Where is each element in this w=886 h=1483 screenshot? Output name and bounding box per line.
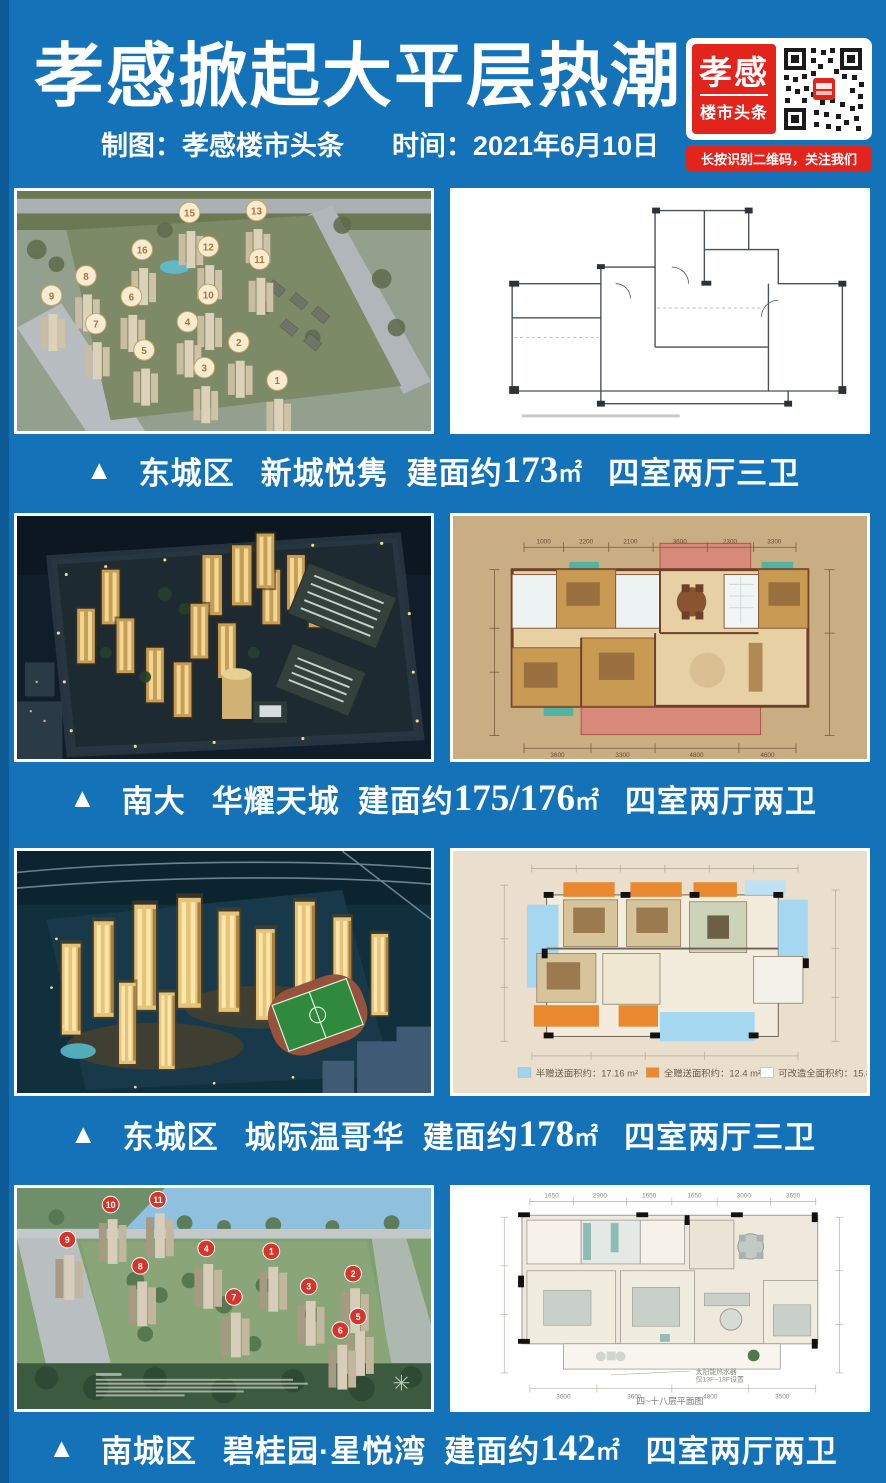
svg-text:10: 10 <box>106 1200 116 1210</box>
header-subline: 制图：孝感楼市头条 时间：2021年6月10日 <box>60 124 700 163</box>
svg-text:3600: 3600 <box>556 1393 571 1400</box>
aerial-photo-huayao <box>14 513 434 762</box>
svg-text:4800: 4800 <box>689 752 704 759</box>
brand-logo-line2: 楼市头条 <box>700 94 768 123</box>
date-text: 时间：2021年6月10日 <box>392 124 659 163</box>
room-layout: 四室两厅三卫 <box>608 448 800 493</box>
svg-text:4: 4 <box>204 1244 209 1254</box>
floor-plan-xincheng-art <box>453 191 867 431</box>
plan-disclaimer-line <box>522 414 680 417</box>
aerial-photo-wengehua-art <box>17 851 431 1093</box>
svg-text:5: 5 <box>356 1312 361 1322</box>
svg-text:4: 4 <box>185 318 191 329</box>
svg-text:11: 11 <box>254 255 265 266</box>
qr-caption: 长按识别二维码，关注我们 <box>686 146 872 171</box>
legend-label-full: 全赠送面积约：12.4 m² <box>664 1067 761 1078</box>
triangle-marker: ▲ <box>69 783 96 814</box>
svg-text:16: 16 <box>137 245 149 256</box>
room-layout: 四室两厅两卫 <box>625 776 817 821</box>
svg-text:4800: 4800 <box>703 1393 718 1400</box>
room-layout: 四室两厅两卫 <box>646 1426 838 1471</box>
brand-logo-line1: 孝感 <box>699 55 769 91</box>
aerial-photo-wengehua <box>14 848 434 1096</box>
svg-text:3300: 3300 <box>767 538 782 545</box>
district: 东城区 <box>123 1112 219 1157</box>
listing-caption-3: ▲ 东城区 城际温哥华 建面约 178 ㎡ 四室两厅三卫 <box>0 1104 886 1164</box>
svg-text:8: 8 <box>138 1261 143 1271</box>
svg-text:3: 3 <box>306 1282 311 1292</box>
svg-text:2300: 2300 <box>723 538 738 545</box>
svg-text:7: 7 <box>231 1292 236 1302</box>
svg-text:3000: 3000 <box>737 1193 752 1200</box>
brand-logo: 孝感 楼市头条 <box>692 44 776 134</box>
aerial-photo-xincheng-art: 15 13 16 12 11 8 9 6 10 7 4 2 5 3 1 <box>17 191 431 431</box>
svg-text:11: 11 <box>153 1195 162 1205</box>
area-value: 142 <box>540 1427 596 1470</box>
svg-text:3600: 3600 <box>673 538 688 545</box>
left-edge-shade <box>0 0 9 1483</box>
floor-plan-xingyuewan: 太阳能热水器 仅13F~18F设置 四~十八层平面图 1650 2900 165… <box>450 1185 870 1412</box>
floor-plan-xingyuewan-art: 太阳能热水器 仅13F~18F设置 四~十八层平面图 1650 2900 165… <box>453 1188 867 1409</box>
area-unit: ㎡ <box>575 781 599 816</box>
svg-text:9: 9 <box>49 291 55 302</box>
legend-label-convert: 可改造全面积约：15.84m² <box>778 1067 867 1078</box>
floor-plan-wengehua: 半赠送面积约：17.16 m² 全赠送面积约：12.4 m² 可改造全面积约：1… <box>450 848 870 1096</box>
svg-text:4600: 4600 <box>760 752 775 759</box>
area-unit: ㎡ <box>596 1431 620 1466</box>
area-unit: ㎡ <box>558 453 582 488</box>
plan-legend: 半赠送面积约：17.16 m² 全赠送面积约：12.4 m² 可改造全面积约：1… <box>518 1067 867 1078</box>
qr-code-icon <box>780 44 866 134</box>
triangle-marker: ▲ <box>86 455 113 486</box>
area-prefix: 建面约 <box>358 776 454 821</box>
svg-text:3: 3 <box>202 364 208 375</box>
project-name: 碧桂园·星悦湾 <box>223 1426 426 1471</box>
compass-icon <box>394 1375 410 1391</box>
plan-caption: 四~十八层平面图 <box>636 1395 703 1406</box>
aerial-photo-xingyuewan-art: 10 11 9 8 4 1 3 2 7 5 6 <box>17 1188 431 1409</box>
floor-plan-huayao-art: 1000 2200 2100 3600 2300 3300 3600 3300 … <box>453 516 867 759</box>
area-value: 173 <box>503 449 559 492</box>
svg-text:3500: 3500 <box>775 1393 790 1400</box>
svg-text:1: 1 <box>269 1247 274 1257</box>
svg-text:2200: 2200 <box>579 538 594 545</box>
svg-text:10: 10 <box>203 290 215 301</box>
triangle-marker: ▲ <box>70 1119 97 1150</box>
room-layout: 四室两厅三卫 <box>624 1112 816 1157</box>
area-value: 175/176 <box>454 777 575 820</box>
district: 南城区 <box>101 1426 197 1471</box>
svg-text:2: 2 <box>236 338 242 349</box>
svg-text:3600: 3600 <box>550 752 565 759</box>
svg-text:6: 6 <box>129 292 135 303</box>
poster: 孝感掀起大平层热潮 制图：孝感楼市头条 时间：2021年6月10日 孝感 楼市头… <box>0 0 886 1483</box>
svg-text:9: 9 <box>65 1235 70 1245</box>
aerial-photo-huayao-art <box>17 516 431 759</box>
svg-text:3300: 3300 <box>615 752 630 759</box>
svg-text:1000: 1000 <box>537 538 552 545</box>
project-name: 城际温哥华 <box>245 1112 405 1157</box>
svg-text:6: 6 <box>338 1326 343 1336</box>
aerial-photo-xingyuewan: 10 11 9 8 4 1 3 2 7 5 6 <box>14 1185 434 1412</box>
triangle-marker: ▲ <box>48 1433 75 1464</box>
district: 南大 <box>122 776 186 821</box>
listing-caption-4: ▲ 南城区 碧桂园·星悦湾 建面约 142 ㎡ 四室两厅两卫 <box>0 1418 886 1478</box>
page-title: 孝感掀起大平层热潮 <box>28 20 688 121</box>
area-prefix: 建面约 <box>407 448 503 493</box>
floor-plan-wengehua-art: 半赠送面积约：17.16 m² 全赠送面积约：12.4 m² 可改造全面积约：1… <box>453 851 867 1093</box>
aerial-photo-xincheng: 15 13 16 12 11 8 9 6 10 7 4 2 5 3 1 <box>14 188 434 434</box>
listing-caption-2: ▲ 南大 华耀天城 建面约 175/176 ㎡ 四室两厅两卫 <box>0 768 886 828</box>
svg-text:3600: 3600 <box>627 1393 642 1400</box>
area-unit: ㎡ <box>574 1117 598 1152</box>
svg-text:12: 12 <box>203 243 215 254</box>
floor-plan-xincheng <box>450 188 870 434</box>
svg-text:1650: 1650 <box>544 1193 559 1200</box>
svg-text:3650: 3650 <box>786 1193 801 1200</box>
qr-panel: 孝感 楼市头条 <box>686 38 872 140</box>
district: 东城区 <box>139 448 235 493</box>
svg-text:仅13F~18F设置: 仅13F~18F设置 <box>695 1375 744 1384</box>
credit-text: 制图：孝感楼市头条 <box>101 124 344 163</box>
svg-text:1: 1 <box>274 376 280 387</box>
svg-text:1650: 1650 <box>687 1193 702 1200</box>
legend-label-half: 半赠送面积约：17.16 m² <box>536 1067 638 1078</box>
project-name: 新城悦隽 <box>261 448 389 493</box>
area-prefix: 建面约 <box>444 1426 540 1471</box>
svg-text:5: 5 <box>141 346 147 357</box>
area-prefix: 建面约 <box>423 1112 519 1157</box>
svg-text:7: 7 <box>93 320 99 331</box>
listing-caption-1: ▲ 东城区 新城悦隽 建面约 173 ㎡ 四室两厅三卫 <box>0 440 886 500</box>
svg-text:8: 8 <box>83 272 89 283</box>
svg-text:2900: 2900 <box>593 1193 608 1200</box>
svg-text:2: 2 <box>351 1269 356 1279</box>
svg-text:太阳能热水器: 太阳能热水器 <box>695 1367 736 1376</box>
svg-text:13: 13 <box>251 206 263 217</box>
floor-plan-huayao: 1000 2200 2100 3600 2300 3300 3600 3300 … <box>450 513 870 762</box>
area-value: 178 <box>519 1113 575 1156</box>
svg-text:2100: 2100 <box>623 538 638 545</box>
project-name: 华耀天城 <box>212 776 340 821</box>
svg-text:15: 15 <box>184 208 196 219</box>
svg-text:1650: 1650 <box>642 1193 657 1200</box>
